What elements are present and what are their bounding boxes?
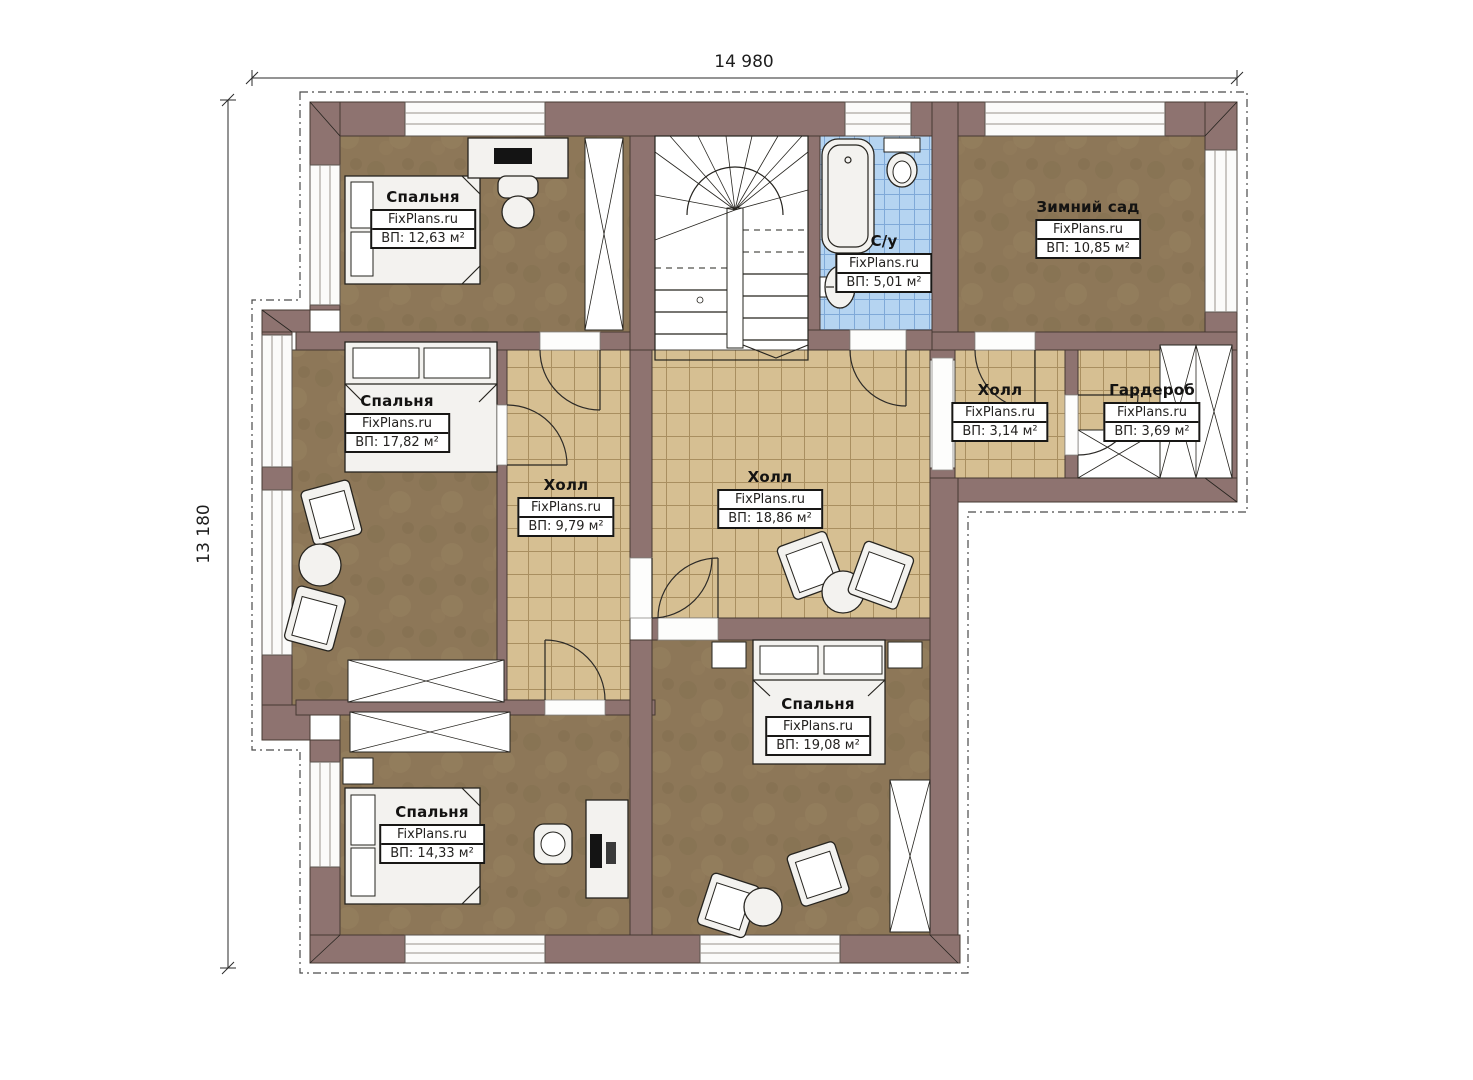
wardrobe-x — [348, 660, 504, 702]
room-area: ВП: 14,33 м² — [381, 845, 483, 862]
desk — [586, 800, 628, 898]
window — [985, 102, 1165, 136]
room-name: Холл — [517, 476, 614, 494]
floor-plan-canvas: 14 980 13 180 Спальня FixPlans.ru ВП: 12… — [0, 0, 1473, 1080]
coffee-table — [299, 544, 341, 586]
room-area: ВП: 9,79 м² — [519, 518, 612, 535]
wardrobe-x — [890, 780, 930, 932]
room-name: Спальня — [370, 188, 476, 206]
room-name: Гардероб — [1103, 381, 1200, 399]
room-label-hall-right: Холл FixPlans.ru ВП: 3,14 м² — [951, 381, 1048, 442]
room-info-box: FixPlans.ru ВП: 14,33 м² — [379, 824, 485, 864]
window — [405, 935, 545, 963]
room-info-box: FixPlans.ru ВП: 18,86 м² — [717, 489, 823, 529]
dimension-line-top — [246, 70, 1243, 86]
window — [310, 165, 340, 305]
coffee-table — [744, 888, 782, 926]
wall-segment — [630, 640, 652, 935]
room-name: С/у — [835, 232, 932, 250]
wall-segment — [1065, 455, 1078, 478]
wall-segment — [932, 332, 975, 350]
wall-segment — [932, 102, 958, 350]
room-label-bedroom-left: Спальня FixPlans.ru ВП: 17,82 м² — [344, 392, 450, 453]
wardrobe-x — [585, 138, 623, 330]
room-info-box: FixPlans.ru ВП: 17,82 м² — [344, 413, 450, 453]
nightstand — [343, 758, 373, 784]
room-brand: FixPlans.ru — [953, 404, 1046, 423]
room-info-box: FixPlans.ru ВП: 5,01 м² — [835, 253, 932, 293]
wall-segment — [497, 350, 507, 405]
room-name: Спальня — [379, 803, 485, 821]
wall-segment — [808, 136, 820, 350]
wall-segment — [906, 330, 932, 350]
desk — [468, 138, 568, 178]
room-name: Зимний сад — [1035, 198, 1141, 216]
room-brand: FixPlans.ru — [767, 718, 869, 737]
room-brand: FixPlans.ru — [719, 491, 821, 510]
toilet — [884, 138, 920, 187]
window — [310, 762, 340, 867]
window — [1205, 150, 1237, 312]
room-brand: FixPlans.ru — [1037, 221, 1139, 240]
room-info-box: FixPlans.ru ВП: 3,14 м² — [951, 402, 1048, 442]
wall-right-lower — [930, 478, 958, 935]
wall-segment — [630, 350, 652, 558]
room-area: ВП: 18,86 м² — [719, 510, 821, 527]
room-label-bedroom-bottom-left: Спальня FixPlans.ru ВП: 14,33 м² — [379, 803, 485, 864]
room-area: ВП: 17,82 м² — [346, 434, 448, 451]
wall-segment — [808, 330, 850, 350]
room-area: ВП: 10,85 м² — [1037, 240, 1139, 257]
room-label-bedroom-bottom-center: Спальня FixPlans.ru ВП: 19,08 м² — [765, 695, 871, 756]
room-info-box: FixPlans.ru ВП: 3,69 м² — [1103, 402, 1200, 442]
room-label-wardrobe-room: Гардероб FixPlans.ru ВП: 3,69 м² — [1103, 381, 1200, 442]
nightstand — [712, 642, 746, 668]
dimension-line-left — [220, 94, 236, 974]
room-area: ВП: 5,01 м² — [837, 274, 930, 291]
room-brand: FixPlans.ru — [381, 826, 483, 845]
room-brand: FixPlans.ru — [1105, 404, 1198, 423]
room-info-box: FixPlans.ru ВП: 9,79 м² — [517, 497, 614, 537]
room-name: Спальня — [765, 695, 871, 713]
window — [262, 335, 292, 467]
floor-plan-svg — [0, 0, 1473, 1080]
wardrobe-x — [350, 712, 510, 752]
wall-segment — [600, 332, 630, 350]
room-label-bathroom: С/у FixPlans.ru ВП: 5,01 м² — [835, 232, 932, 293]
room-area: ВП: 19,08 м² — [767, 737, 869, 754]
room-area: ВП: 3,14 м² — [953, 423, 1046, 440]
room-name: Холл — [717, 468, 823, 486]
wall-wing-bottom — [932, 478, 1237, 502]
window — [700, 935, 840, 963]
room-label-hall-small: Холл FixPlans.ru ВП: 9,79 м² — [517, 476, 614, 537]
room-brand: FixPlans.ru — [837, 255, 930, 274]
room-label-hall-main: Холл FixPlans.ru ВП: 18,86 м² — [717, 468, 823, 529]
room-label-bedroom-top-left: Спальня FixPlans.ru ВП: 12,63 м² — [370, 188, 476, 249]
wall-segment — [718, 618, 930, 640]
room-info-box: FixPlans.ru ВП: 12,63 м² — [370, 209, 476, 249]
nightstand — [888, 642, 922, 668]
room-name: Спальня — [344, 392, 450, 410]
window — [845, 102, 911, 136]
room-brand: FixPlans.ru — [346, 415, 448, 434]
room-brand: FixPlans.ru — [519, 499, 612, 518]
room-name: Холл — [951, 381, 1048, 399]
room-area: ВП: 12,63 м² — [372, 230, 474, 247]
stair-newel — [727, 208, 743, 348]
window — [405, 102, 545, 136]
dimension-width-label: 14 980 — [714, 52, 773, 72]
room-info-box: FixPlans.ru ВП: 19,08 м² — [765, 716, 871, 756]
wall-bay-top — [262, 310, 310, 332]
room-info-box: FixPlans.ru ВП: 10,85 м² — [1035, 219, 1141, 259]
room-label-winter-garden: Зимний сад FixPlans.ru ВП: 10,85 м² — [1035, 198, 1141, 259]
room-brand: FixPlans.ru — [372, 211, 474, 230]
dimension-height-label: 13 180 — [194, 504, 214, 563]
wall-segment — [652, 618, 658, 640]
desk-chair — [534, 824, 572, 864]
room-area: ВП: 3,69 м² — [1105, 423, 1198, 440]
wall-segment — [630, 136, 655, 350]
wall-segment — [1065, 350, 1078, 395]
